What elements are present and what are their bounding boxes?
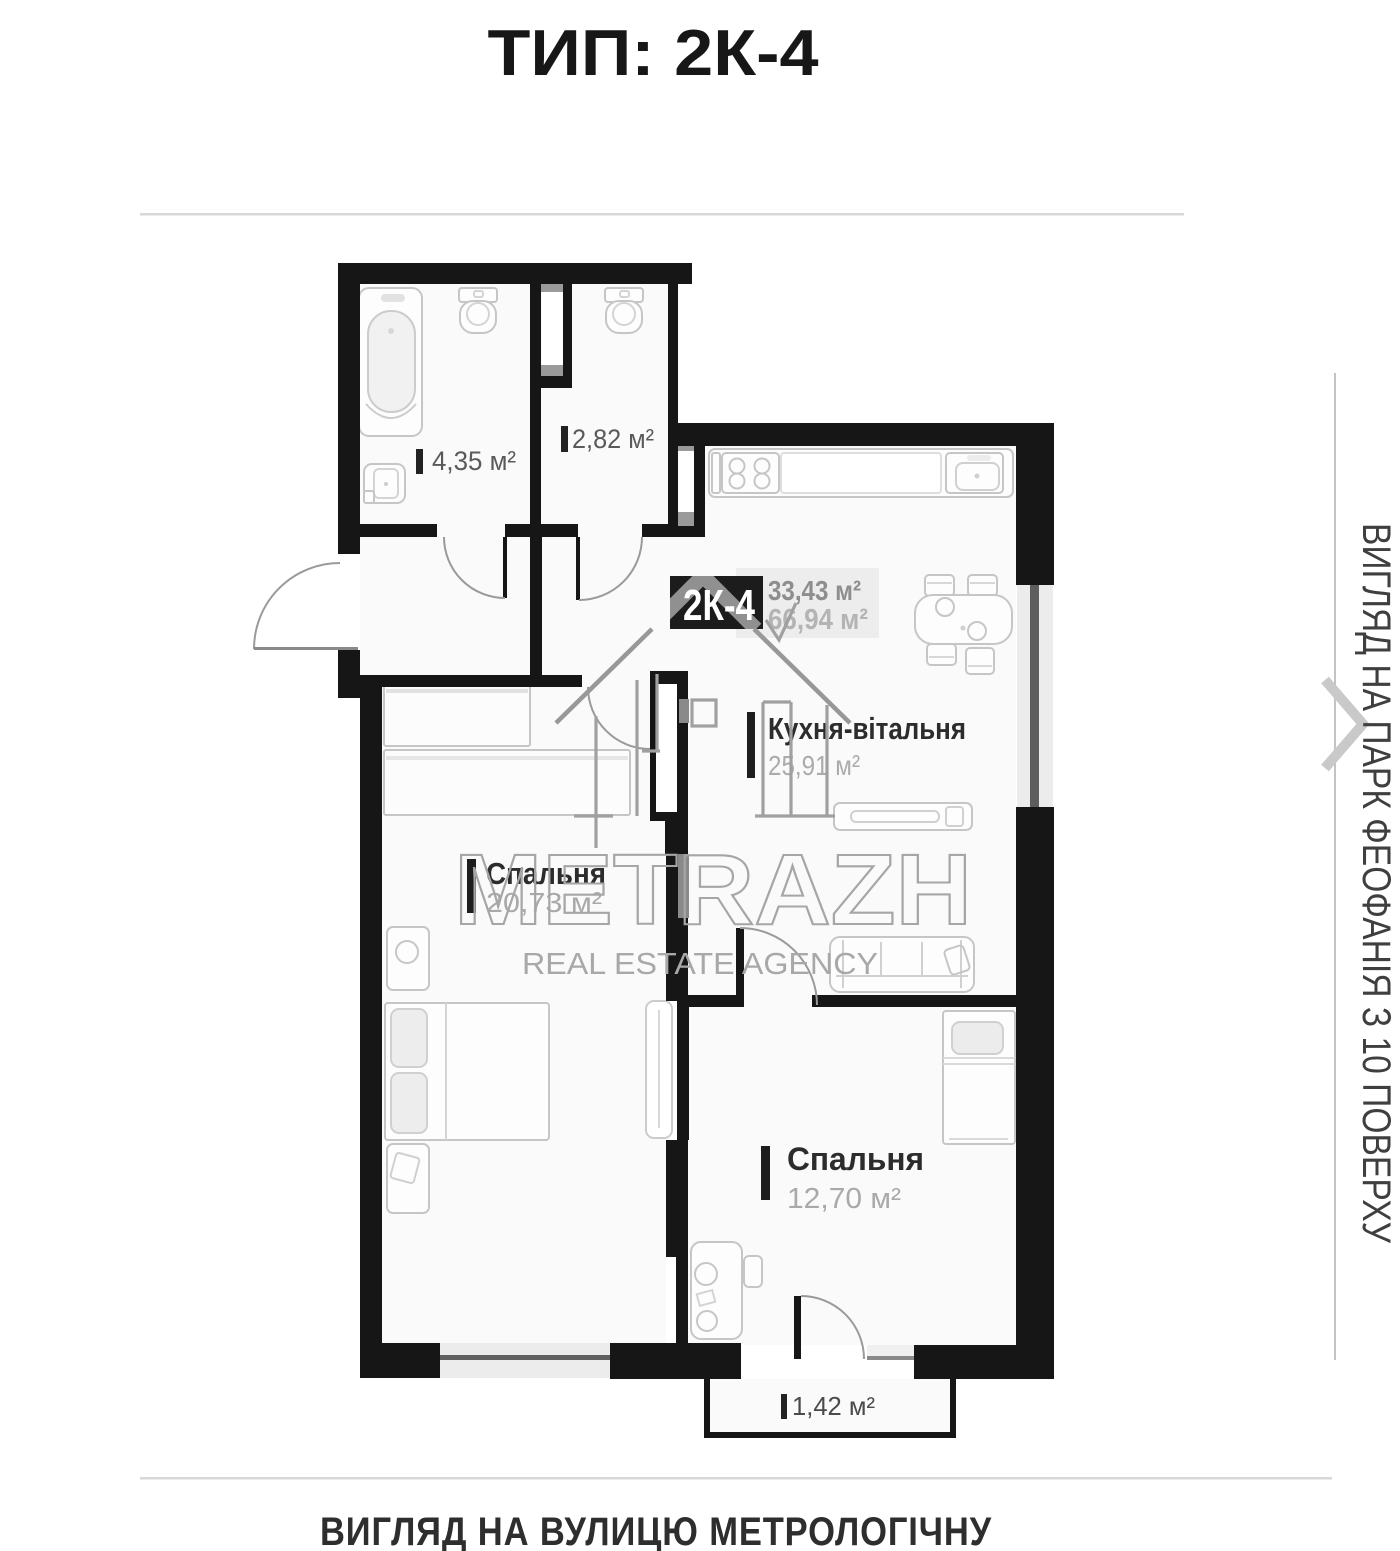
svg-text:2К-4: 2К-4 <box>683 581 755 630</box>
svg-text:Кухня-вітальня: Кухня-вітальня <box>768 711 966 746</box>
svg-text:METRAZH: METRAZH <box>454 834 972 946</box>
svg-text:12,70 м²: 12,70 м² <box>787 1183 901 1215</box>
svg-text:2,82 м²: 2,82 м² <box>572 424 654 454</box>
svg-text:33,43 м²: 33,43 м² <box>768 575 861 606</box>
svg-text:1,42 м²: 1,42 м² <box>792 1391 875 1421</box>
svg-text:Спальня: Спальня <box>787 1141 924 1177</box>
svg-text:ВИГЛЯД НА ВУЛИЦЮ МЕТРОЛОГІЧНУ: ВИГЛЯД НА ВУЛИЦЮ МЕТРОЛОГІЧНУ <box>320 1510 992 1551</box>
svg-text:ВИГЛЯД НА ПАРК ФЕОФАНІЯ З 10 П: ВИГЛЯД НА ПАРК ФЕОФАНІЯ З 10 ПОВЕРХУ <box>1354 523 1398 1243</box>
svg-text:REAL ESTATE AGENCY: REAL ESTATE AGENCY <box>522 946 878 981</box>
svg-text:ТИП: 2К-4: ТИП: 2К-4 <box>488 16 819 89</box>
svg-text:25,91 м²: 25,91 м² <box>768 750 860 781</box>
svg-text:4,35 м²: 4,35 м² <box>432 446 516 476</box>
